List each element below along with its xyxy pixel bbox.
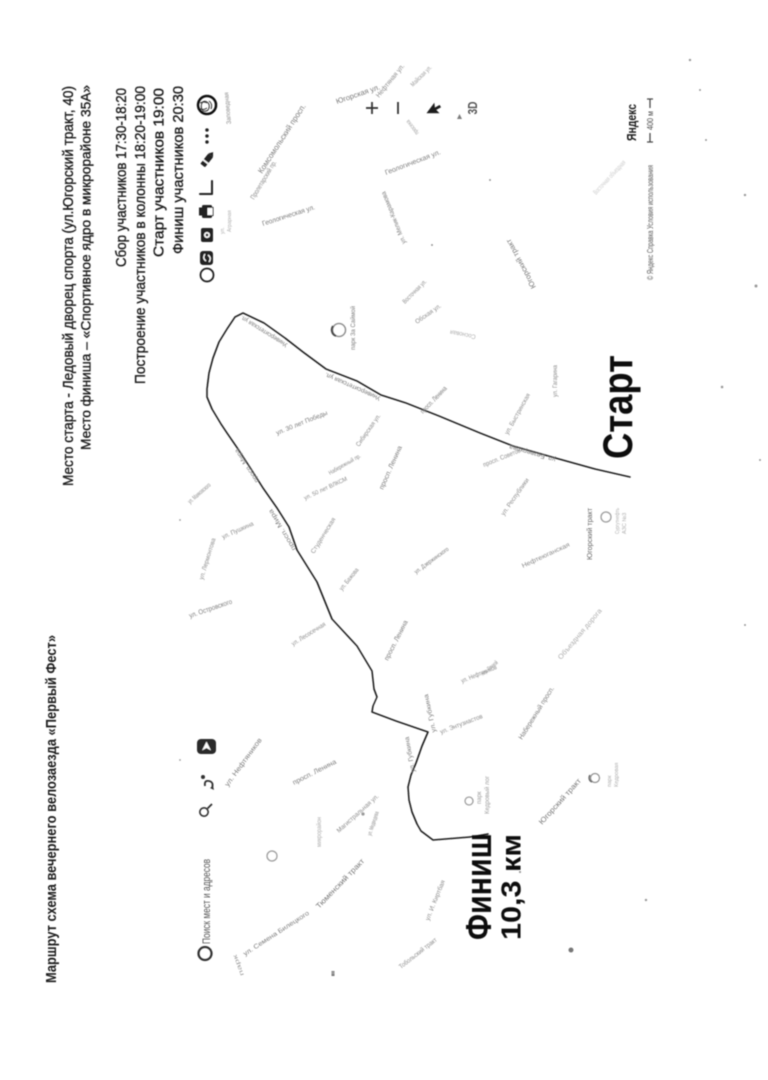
svg-text:© Яндекс Справка Условия исп: © Яндекс Справка Условия использования [646, 165, 655, 280]
svg-text:парк: парк [233, 953, 246, 976]
svg-text:Студенческая: Студенческая [310, 516, 338, 555]
svg-text:Аграрная: Аграрная [227, 210, 233, 232]
svg-text:ул. Губкина: ул. Губкина [403, 736, 417, 773]
svg-text:Яндекс: Яндекс [624, 104, 639, 141]
svg-text:Объездная дорога: Объездная дорога [556, 607, 603, 661]
svg-text:ул. Нефтяников: ул. Нефтяников [460, 664, 498, 685]
svg-text:Финиш участников 20:30: Финиш участников 20:30 [171, 86, 187, 254]
svg-text:Югорский тракт: Югорский тракт [504, 237, 538, 290]
svg-text:Университетская ул.: Университетская ул. [239, 314, 289, 349]
svg-text:Набережный просп.: Набережный просп. [517, 685, 556, 741]
svg-text:Сибирская ул.: Сибирская ул. [354, 412, 382, 448]
svg-text:Нефтеюганская: Нефтеюганская [521, 541, 572, 570]
svg-text:Финиш: Финиш [458, 833, 499, 940]
svg-text:парк За Саймой: парк За Саймой [349, 306, 357, 350]
svg-text:Старт: Старт [594, 355, 641, 459]
svg-text:Место старта - Ледовый дворец: Место старта - Ледовый дворец спорта (ул… [61, 86, 77, 486]
svg-text:просп. Мира: просп. Мира [267, 507, 297, 551]
svg-text:ул. Бажова: ул. Бажова [338, 567, 361, 593]
svg-text:Комсомольский просп.: Комсомольский просп. [256, 102, 308, 175]
svg-text:просп. Ленина: просп. Ленина [378, 445, 404, 491]
svg-text:ул. Нефтяников: ул. Нефтяников [224, 737, 264, 788]
svg-text:Поиск мест и адресов: Поиск мест и адресов [201, 859, 213, 944]
svg-text:Кедровый лог: Кедровый лог [484, 775, 491, 814]
svg-text:ул. Энтузиастов: ул. Энтузиастов [439, 713, 484, 736]
svg-text:ул. Быстринская: ул. Быстринская [504, 392, 533, 436]
svg-text:Восточная ул.: Восточная ул. [401, 278, 428, 305]
svg-text:просп. Советов: просп. Советов [482, 447, 522, 469]
svg-text:ул. Лесосечная: ул. Лесосечная [290, 621, 327, 648]
svg-text:ул. Лермонтова: ул. Лермонтова [198, 537, 217, 580]
svg-text:ул. Островского: ул. Островского [188, 599, 233, 620]
svg-text:Геологическая ул.: Геологическая ул. [261, 204, 316, 228]
svg-text:парк: парк [477, 791, 483, 804]
svg-text:Югорский тракт: Югорский тракт [537, 776, 584, 826]
svg-text:ул. Маяковского: ул. Маяковского [187, 482, 213, 506]
svg-text:ул. Медведева: ул. Медведева [367, 811, 381, 837]
svg-text:Университетская ул.: Университетская ул. [324, 371, 382, 402]
svg-text:Маршрут схема вечернего велоза: Маршрут схема вечернего велозаезда «Перв… [43, 635, 60, 983]
svg-text:Заповедная: Заповедная [223, 92, 233, 125]
svg-text:Югорская ул.: Югорская ул. [335, 82, 381, 105]
svg-text:Кедровая: Кедровая [614, 763, 620, 787]
svg-text:Восточная объездная: Восточная объездная [592, 159, 628, 197]
svg-text:Тобольский тракт: Тобольский тракт [397, 936, 438, 971]
svg-text:просп. Ленина: просп. Ленина [384, 619, 410, 661]
svg-text:Сбор участников 17:30-18:20: Сбор участников 17:30-18:20 [114, 88, 130, 267]
svg-text:3D: 3D [466, 102, 480, 115]
svg-text:Сургутнефть: Сургутнефть [615, 508, 621, 534]
svg-text:Геологическая ул.: Геологическая ул. [384, 149, 442, 177]
svg-text:ул. Пушкина: ул. Пушкина [221, 520, 255, 540]
svg-text:ул. 30 лет Победы: ул. 30 лет Победы [275, 409, 329, 437]
svg-text:Построение участников в колонн: Построение участников в колонны 18:20-19… [133, 86, 149, 384]
svg-text:ул. Губкина: ул. Губкина [422, 693, 438, 733]
svg-text:микрорайон: микрорайон [316, 817, 323, 847]
svg-text:ул. Мелик-Карамова: ул. Мелик-Карамова [380, 190, 408, 245]
svg-text:просп. Ленина: просп. Ленина [292, 759, 338, 787]
svg-text:ул. 50 лет ВЛКСМ: ул. 50 лет ВЛКСМ [303, 477, 348, 502]
svg-text:Нефтяная ул.: Нефтяная ул. [375, 63, 406, 99]
svg-text:АЗС №3: АЗС №3 [622, 513, 628, 534]
svg-text:просека: просека [405, 118, 420, 136]
svg-text:Майская ул.: Майская ул. [409, 64, 434, 89]
svg-text:ул.: ул. [220, 227, 226, 234]
svg-text:Сосновая: Сосновая [449, 328, 476, 340]
svg-text:ул. Дзержинского: ул. Дзержинского [414, 546, 451, 575]
svg-text:ул. Республики: ул. Республики [499, 476, 531, 517]
svg-text:400 м: 400 м [646, 111, 655, 130]
svg-text:Обская ул.: Обская ул. [414, 302, 443, 326]
svg-text:Тюменский тракт: Тюменский тракт [314, 856, 367, 910]
svg-text:Набережный пр.: Набережный пр. [328, 453, 363, 477]
svg-text:ул. Семена Билецкого: ул. Семена Билецкого [242, 910, 311, 958]
svg-text:Югорский тракт: Югорский тракт [585, 507, 594, 560]
svg-text:ул. Гагарина: ул. Гагарина [552, 365, 559, 397]
svg-text:просп. Мира: просп. Мира [233, 447, 260, 484]
svg-text:ул. И. Киртбая: ул. И. Киртбая [423, 878, 447, 921]
svg-text:просп. Ленина: просп. Ленина [419, 385, 448, 415]
svg-text:Место финиша – «Спортивное ядр: Место финиша – «Спортивное ядро в микрор… [79, 85, 94, 450]
svg-text:парк: парк [607, 775, 613, 787]
svg-text:10,3 км: 10,3 км [496, 834, 527, 940]
svg-text:Старт участников 19:00: Старт участников 19:00 [152, 88, 168, 257]
